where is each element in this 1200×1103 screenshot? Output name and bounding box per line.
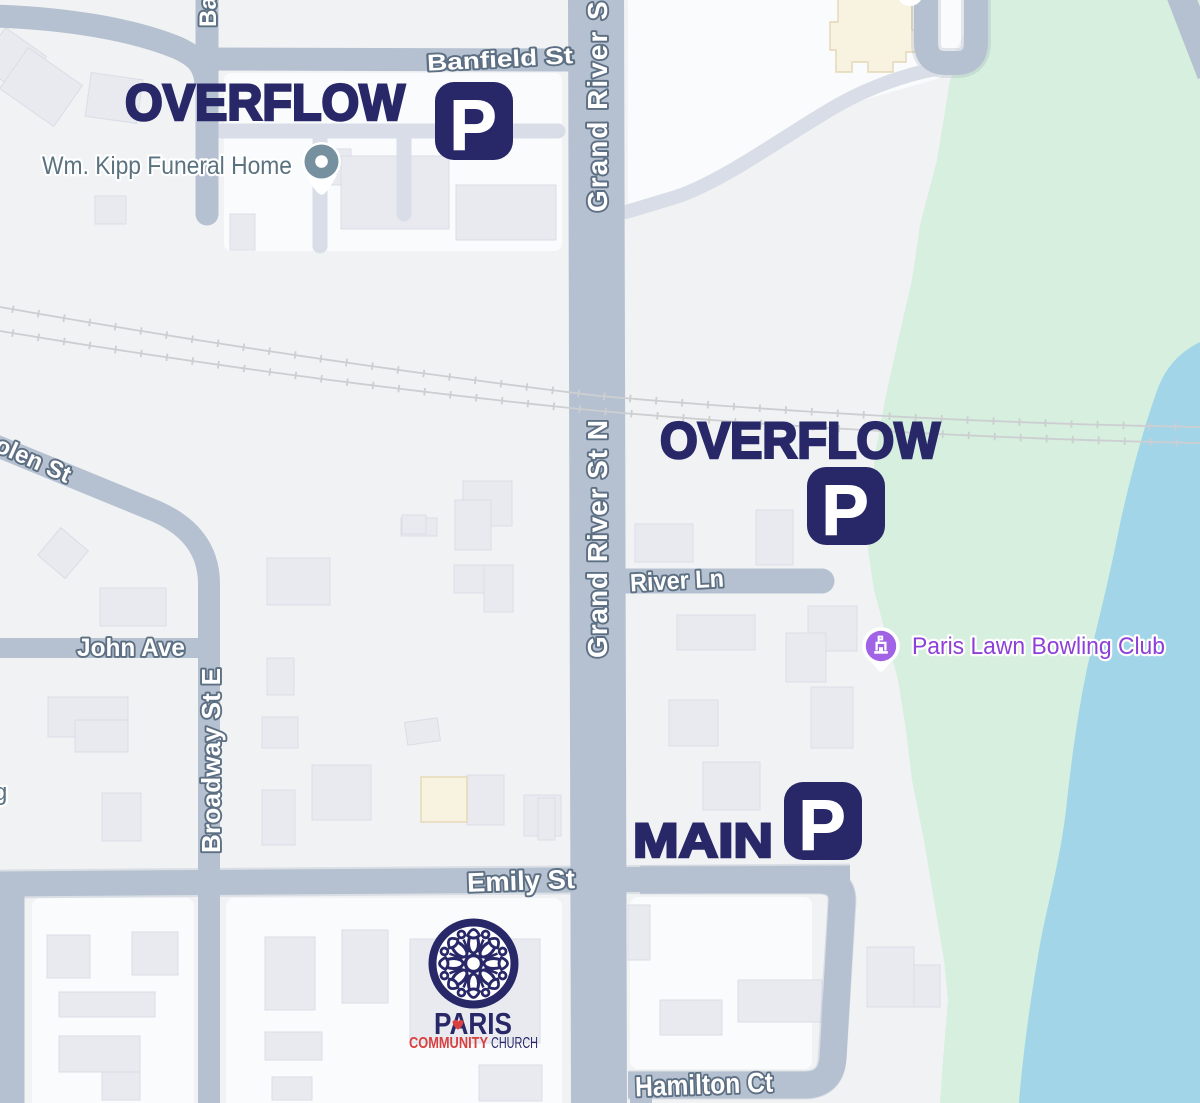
svg-text:g: g	[0, 779, 7, 806]
svg-text:COMMUNITY: COMMUNITY	[409, 1035, 489, 1052]
svg-text:Grand River St: Grand River St	[582, 0, 613, 212]
svg-text:Broadway St E: Broadway St E	[196, 668, 226, 853]
svg-text:P: P	[798, 787, 845, 866]
svg-text:Wm. Kipp Funeral Home: Wm. Kipp Funeral Home	[42, 152, 292, 180]
svg-text:John Ave: John Ave	[77, 634, 185, 662]
svg-text:P: P	[821, 472, 868, 551]
svg-text:P: P	[449, 87, 496, 166]
svg-text:OVERFLOW: OVERFLOW	[660, 412, 941, 469]
svg-text:Ba: Ba	[195, 0, 222, 27]
svg-text:Emily St: Emily St	[467, 864, 576, 898]
svg-text:Hamilton Ct: Hamilton Ct	[634, 1067, 773, 1103]
svg-text:Grand River St N: Grand River St N	[582, 420, 613, 658]
svg-text:MAIN: MAIN	[633, 815, 773, 868]
svg-text:Paris Lawn Bowling Club: Paris Lawn Bowling Club	[912, 633, 1165, 660]
svg-text:CHURCH: CHURCH	[491, 1035, 538, 1052]
svg-text:OVERFLOW: OVERFLOW	[125, 74, 406, 131]
svg-text:River Ln: River Ln	[629, 565, 724, 598]
